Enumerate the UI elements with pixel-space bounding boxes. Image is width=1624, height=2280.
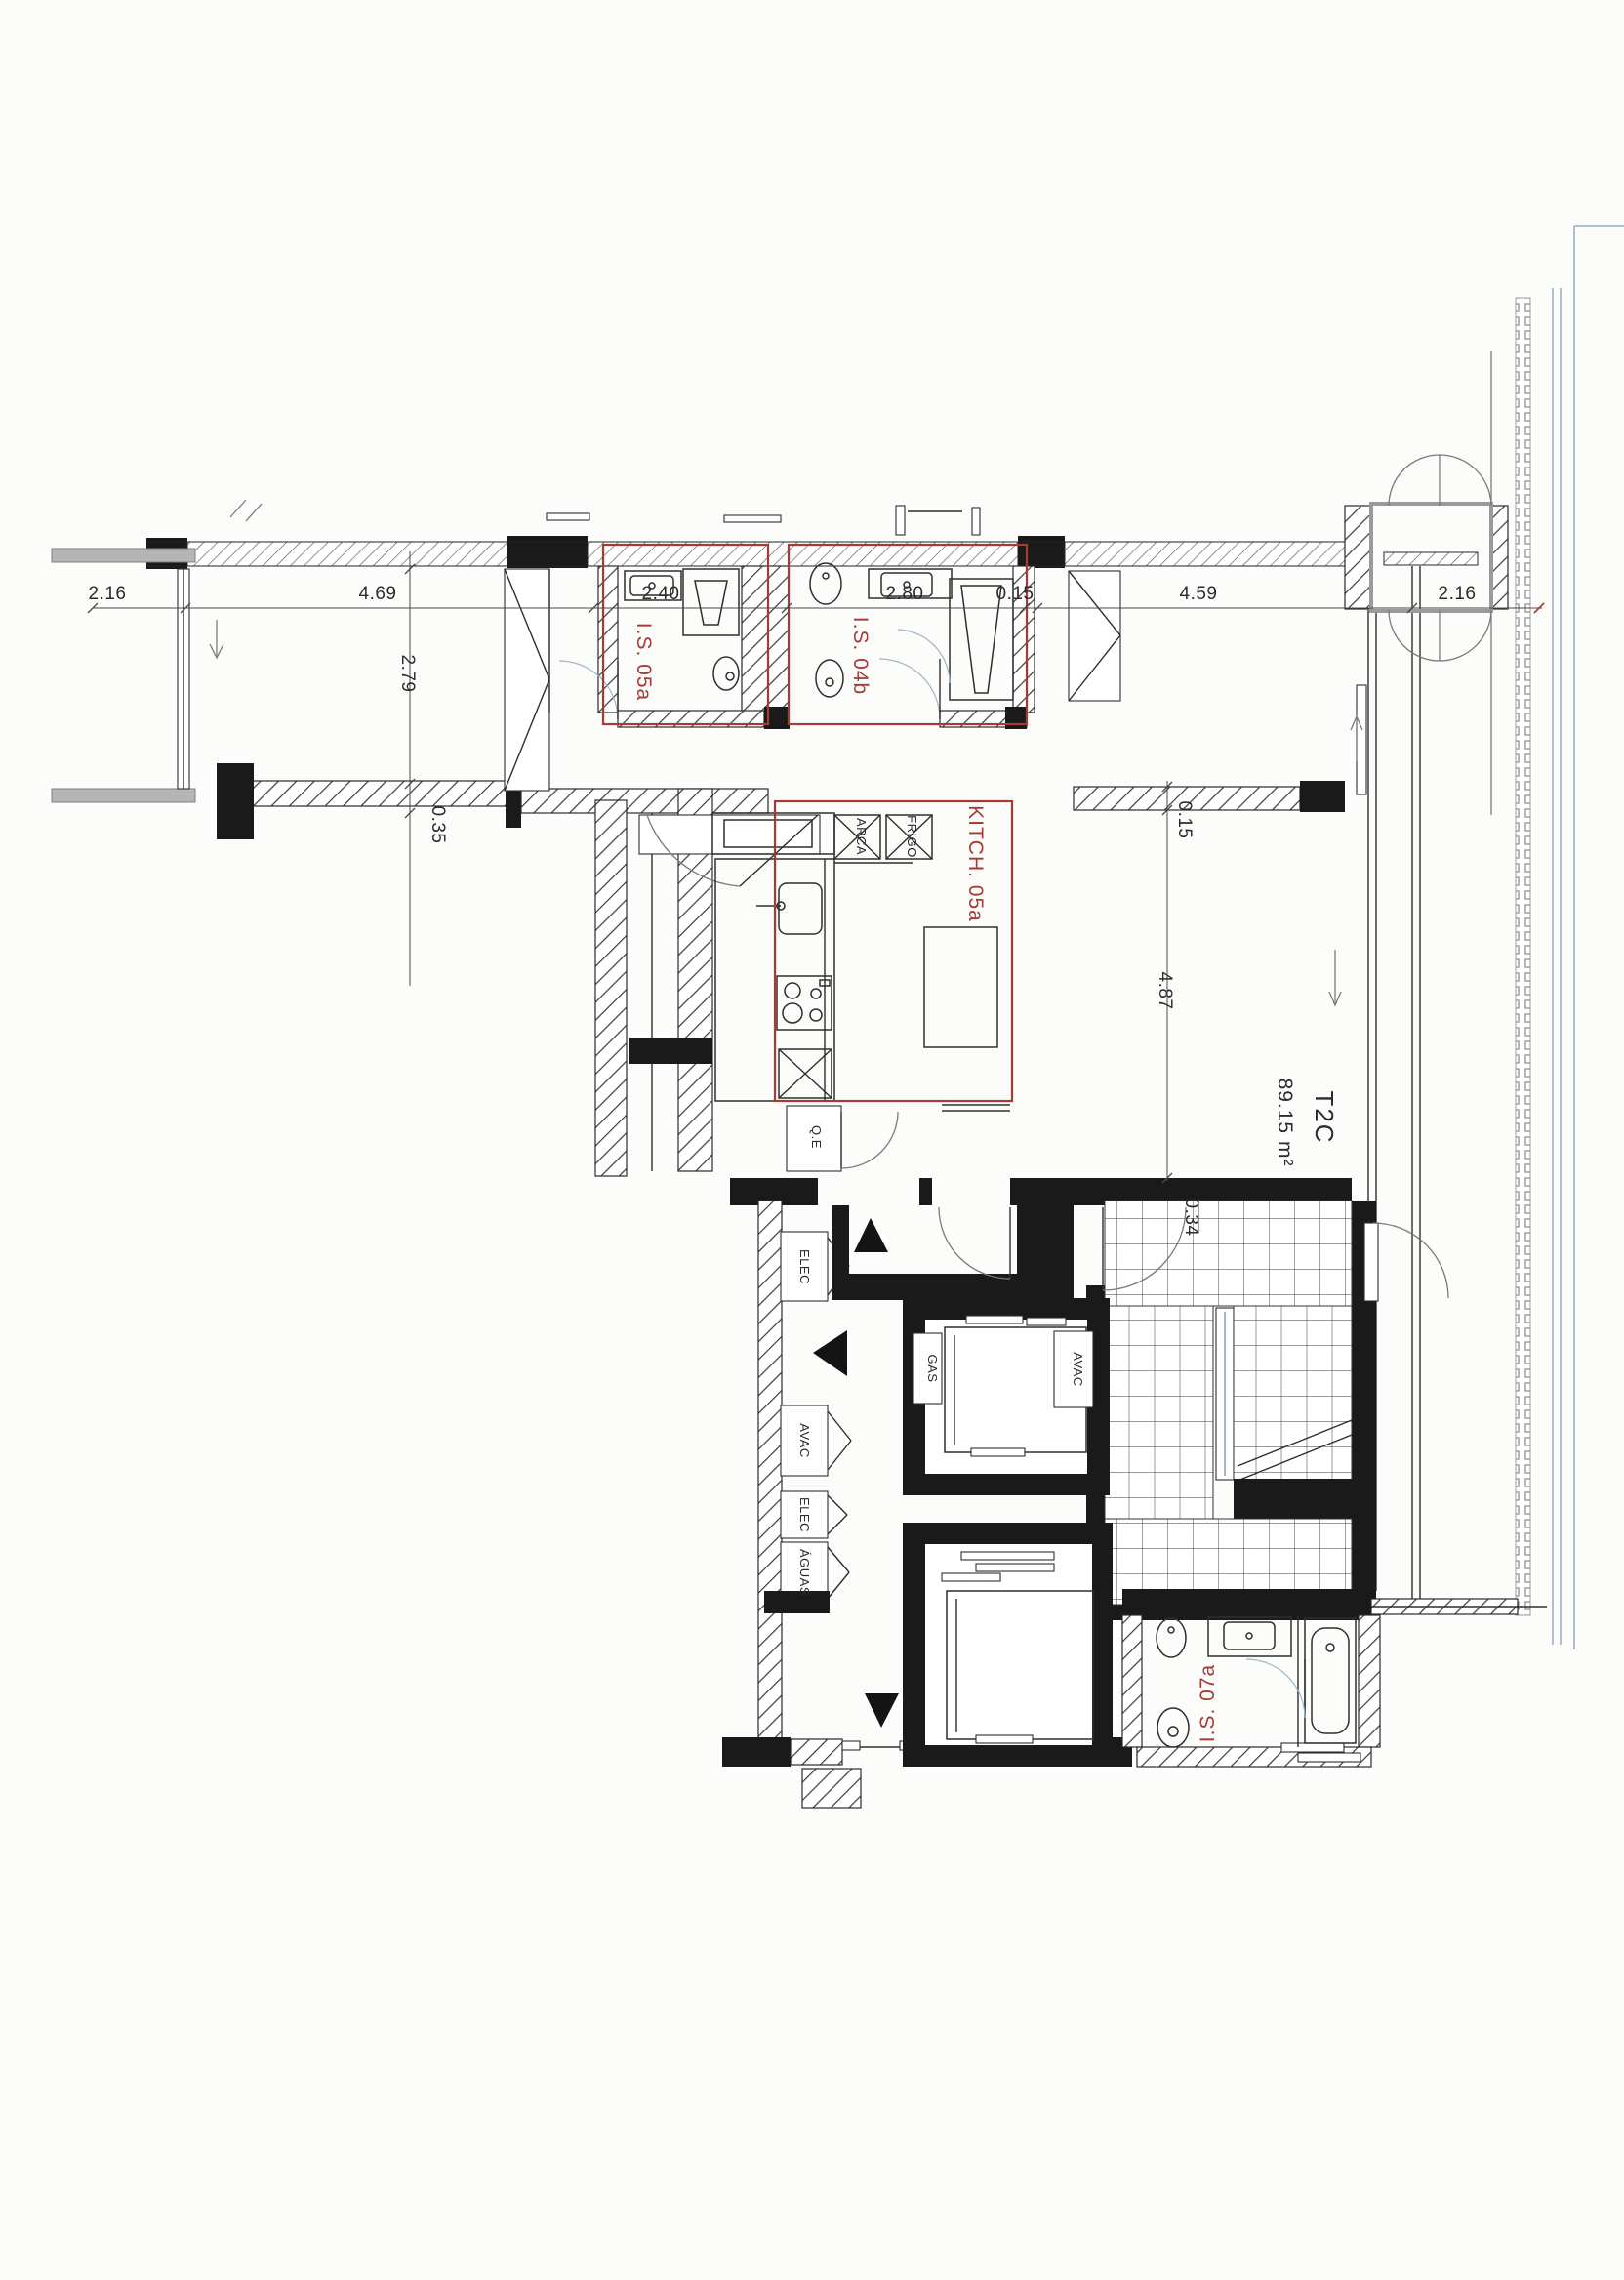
- unit-area-label: 89.15 m²: [1274, 1079, 1296, 1167]
- dim-035: 0.35: [427, 806, 448, 844]
- dim-487: 4.87: [1155, 972, 1175, 1010]
- stair-landing-top: [1105, 1201, 1352, 1306]
- wardrobe-closet: [505, 569, 549, 791]
- label-elec-upper: ELEC: [797, 1249, 812, 1284]
- label-qe: Q.E: [809, 1125, 824, 1149]
- dim-top-7: 2.16: [1439, 584, 1477, 604]
- room-label-is05a: I.S. 05a: [632, 623, 655, 701]
- label-avac-left: AVAC: [797, 1423, 812, 1457]
- dim-279: 2.79: [397, 655, 418, 693]
- dim-top-2: 4.69: [359, 584, 397, 604]
- unit-code-label: T2C: [1310, 1090, 1339, 1144]
- floor-plan-page: 2.16 4.69 2.40 2.80 0.15 4.59 2.16 2.79 …: [0, 0, 1624, 2280]
- room-label-is04b: I.S. 04b: [849, 617, 872, 695]
- label-arca: ARCA: [854, 818, 869, 855]
- dim-top-6: 4.59: [1180, 584, 1218, 604]
- label-elec-lower: ELEC: [797, 1497, 812, 1532]
- entrance-double-door: [1345, 455, 1508, 661]
- curtain-wall-bar-top: [52, 549, 195, 562]
- bathroom-is05a: [559, 545, 790, 729]
- upper-right-room: [1069, 571, 1120, 701]
- dim-top-3: 2.40: [642, 584, 680, 604]
- dim-top-4: 2.80: [886, 584, 924, 604]
- drainage-grate-strip: [1516, 298, 1530, 1615]
- hall-closet: [1069, 571, 1120, 701]
- floor-plan-drawing: 2.16 4.69 2.40 2.80 0.15 4.59 2.16 2.79 …: [0, 0, 1624, 2280]
- top-exterior-wall: [146, 500, 1345, 569]
- stair-flight-right: [1234, 1306, 1352, 1480]
- stairwell: [1086, 1201, 1448, 1620]
- dim-top-1: 2.16: [89, 584, 127, 604]
- stair-flight-left: [1105, 1306, 1213, 1519]
- label-gas: GAS: [925, 1355, 940, 1383]
- label-frigo: FRIGO: [905, 815, 919, 858]
- elevator-2: [903, 1523, 1113, 1767]
- room-label-kitchen: KITCH. 05a: [964, 805, 987, 922]
- vestibule: [832, 1205, 1074, 1300]
- label-avac-right: AVAC: [1071, 1352, 1085, 1386]
- bathroom-is04b: [789, 545, 1035, 729]
- kitchen-island: [924, 927, 997, 1047]
- balcony-edge-lines: [1491, 226, 1624, 1649]
- dim-034: 0.34: [1181, 1199, 1201, 1237]
- room-label-is07a: I.S. 07a: [1197, 1664, 1219, 1742]
- dim-top-5: 0.15: [996, 584, 1035, 604]
- dim-015: 0.15: [1174, 801, 1195, 839]
- is04b-highlight-boundary: [789, 545, 1027, 724]
- label-aguas: ÁGUAS: [797, 1549, 812, 1596]
- curtain-wall-bar-bottom: [52, 789, 195, 802]
